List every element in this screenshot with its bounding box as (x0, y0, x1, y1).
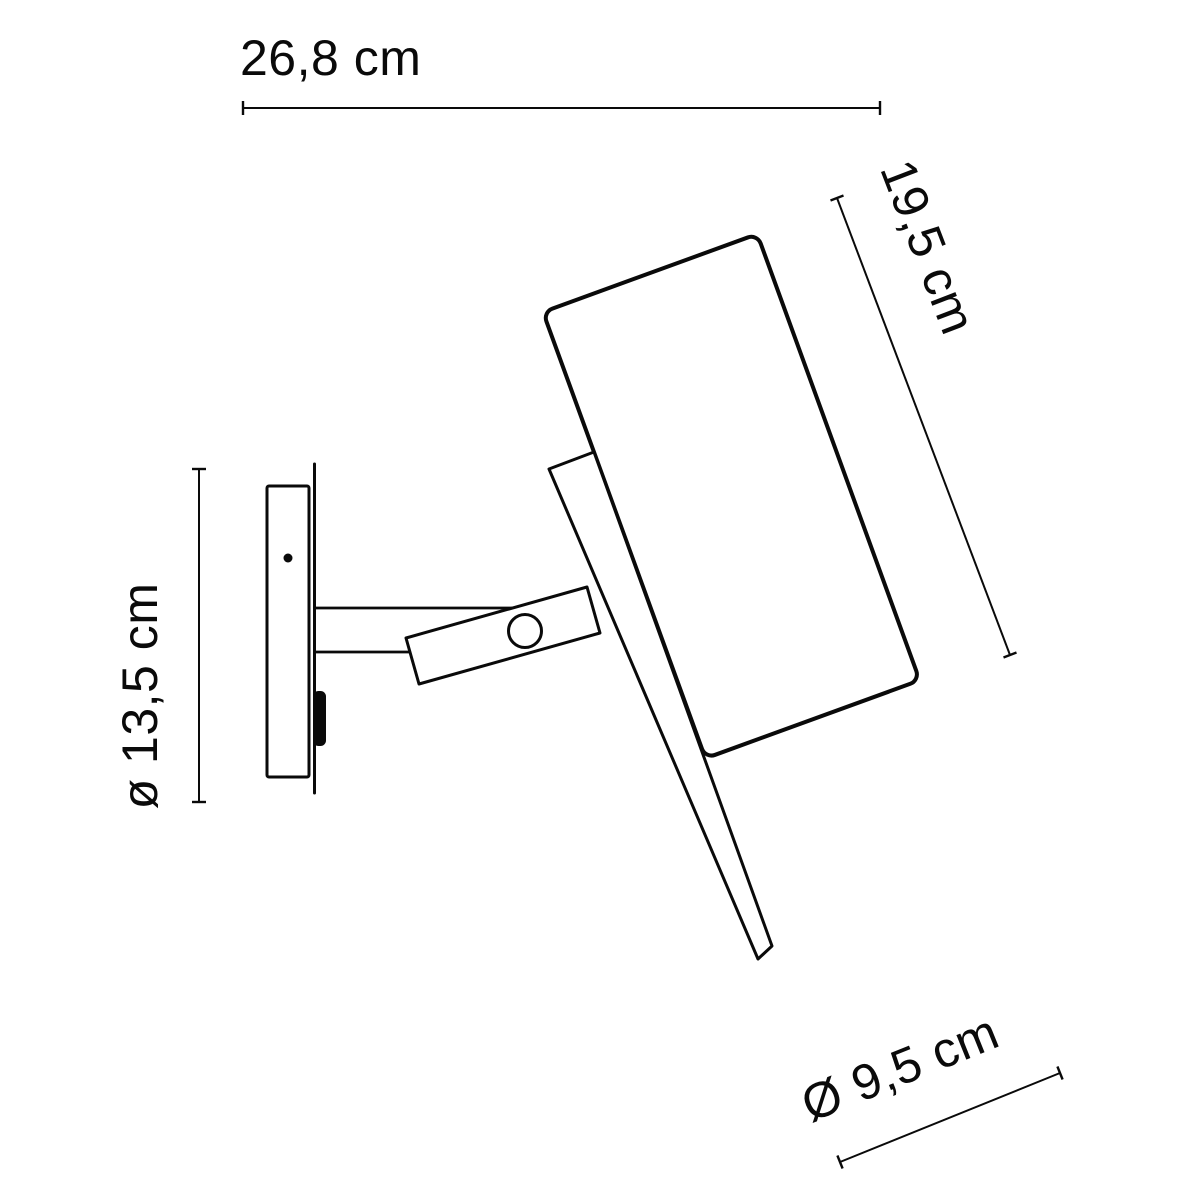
dimension-width-label: 26,8 cm (240, 30, 421, 86)
dimension-shade-diameter: Ø 9,5 cm (794, 1003, 1063, 1168)
dimension-backplate-label: ø 13,5 cm (112, 583, 168, 810)
dimension-width: 26,8 cm (240, 30, 880, 115)
swivel-clamp (406, 587, 600, 684)
wall-lamp-drawing (267, 234, 920, 959)
technical-drawing-canvas: 26,8 cm 19,5 cm ø 13,5 cm Ø 9,5 cm (0, 0, 1200, 1200)
mounting-screw-dot (284, 554, 293, 563)
dimension-height-label: 19,5 cm (869, 152, 986, 341)
dimension-drawing-page: 26,8 cm 19,5 cm ø 13,5 cm Ø 9,5 cm (0, 0, 1200, 1200)
dimension-shade-diameter-label: Ø 9,5 cm (794, 1003, 1007, 1132)
power-switch (313, 691, 326, 746)
wall-plate (267, 486, 309, 777)
dimension-backplate-diameter: ø 13,5 cm (112, 469, 206, 809)
